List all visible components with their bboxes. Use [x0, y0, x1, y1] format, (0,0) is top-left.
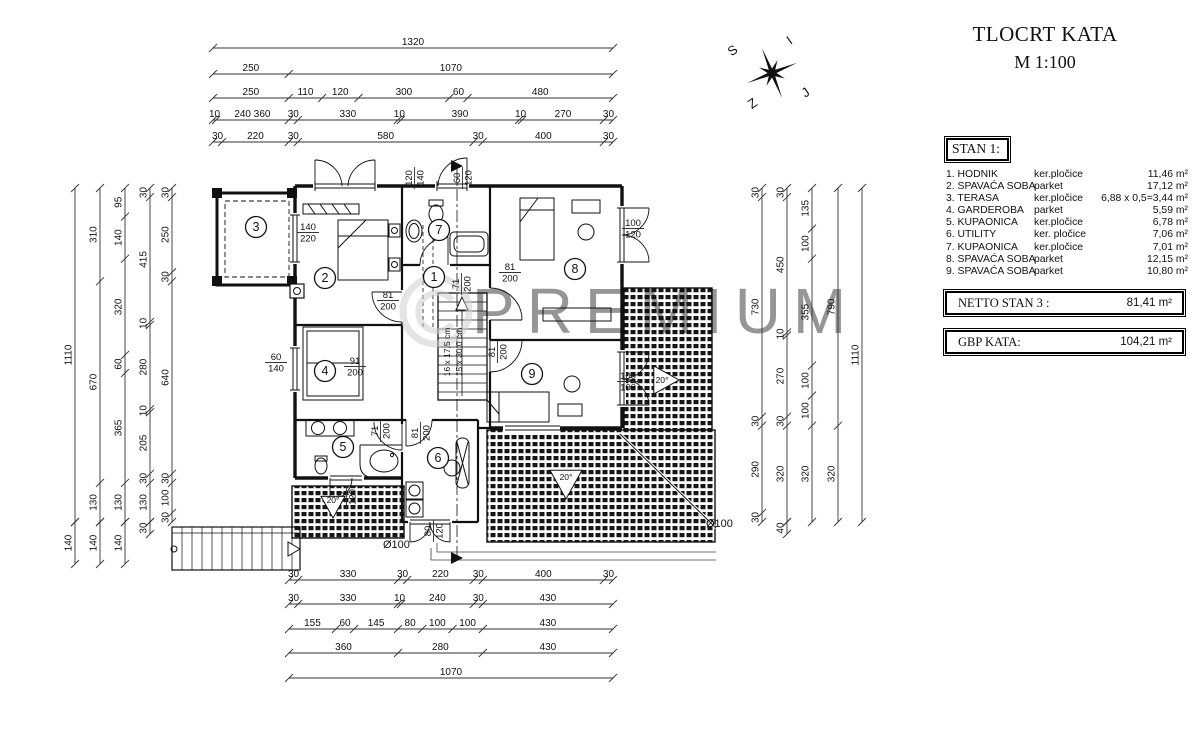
dim-label: 480	[532, 87, 549, 98]
dim-label: 95	[114, 196, 125, 208]
room-area: 6,78 m²	[1096, 217, 1188, 229]
dim-label: 250	[243, 63, 260, 74]
dim-label: 415	[139, 251, 150, 268]
room-material: ker.pločice	[1034, 217, 1096, 229]
dim-label: 220	[247, 131, 264, 142]
gbp-label: GBP KATA:	[958, 335, 1021, 350]
dim-label: 30	[288, 569, 300, 580]
dim-label: 100	[801, 235, 812, 252]
room-number-1: 1	[424, 267, 445, 288]
dim-label: 30	[288, 131, 300, 142]
dim-label: 140	[89, 534, 100, 551]
room-area: 5,59 m²	[1096, 205, 1188, 217]
dim-label: 205	[139, 434, 150, 451]
dim-chain-horizontal: 1070	[285, 667, 617, 682]
opening-height: 140	[416, 170, 427, 186]
room-material: ker. pločice	[1034, 229, 1096, 241]
dim-label: 430	[540, 593, 557, 604]
compass-letter: J	[798, 84, 812, 100]
opening-width: 81	[410, 428, 421, 439]
diameter-label: Ø100	[706, 518, 733, 530]
dim-label: 100	[429, 618, 446, 629]
legend-row: 7. KUPAONICAker.pločice7,01 m²	[946, 242, 1188, 254]
opening-size-label: 81200	[410, 422, 433, 444]
room-number-label: 4	[322, 364, 329, 378]
bed-room2	[338, 220, 400, 280]
opening-width: 81	[505, 262, 516, 273]
drawing-scale: M 1:100	[950, 52, 1140, 73]
room-area: 12,15 m²	[1096, 254, 1188, 266]
dim-chain-vertical: 1110	[64, 184, 80, 526]
opening-height: 200	[380, 302, 396, 313]
opening-size-label: 81200	[377, 290, 399, 313]
room-area: 17,12 m²	[1096, 181, 1188, 193]
room-material: ker.pločice	[1034, 193, 1096, 205]
dim-label: 60	[453, 87, 465, 98]
opening-width: 80	[423, 526, 434, 537]
floorplan-drawing: PREMIUM 13202501070250110120300604801024…	[0, 0, 1200, 749]
dim-label: 155	[304, 618, 321, 629]
opening-width: 91	[350, 356, 361, 367]
room-number-6: 6	[428, 448, 449, 469]
room-number-label: 1	[431, 270, 438, 284]
dim-label: 30	[139, 187, 150, 199]
room-area: 11,46 m²	[1096, 169, 1188, 181]
opening-width: 100	[620, 371, 636, 382]
dim-label: 1320	[402, 37, 425, 48]
room-material: parket	[1034, 254, 1096, 266]
dim-chain-horizontal: 1556014580100100430	[285, 618, 617, 633]
compass-rose: SIZJ	[725, 33, 813, 112]
dim-label: 140	[114, 534, 125, 551]
dim-chain-vertical: 30	[139, 518, 155, 538]
dim-label: 790	[827, 298, 838, 315]
slope-label: 20°	[327, 495, 340, 505]
legend-row: 5. KUPAONICAker.pločice6,78 m²	[946, 217, 1188, 229]
legend-row: 1. HODNIKker.pločice11,46 m²	[946, 169, 1188, 181]
room-number-label: 2	[322, 271, 329, 285]
dim-label: 330	[340, 593, 357, 604]
opening-width: 71	[451, 279, 462, 290]
dim-chain-vertical: 135100355100100320	[801, 184, 817, 526]
dim-chain-vertical: 140	[114, 518, 130, 568]
compass-letter: S	[725, 41, 741, 58]
dim-label: 30	[139, 472, 150, 484]
dim-label: 250	[243, 87, 260, 98]
dim-chain-vertical: 307303029030	[751, 184, 767, 526]
netto-label: NETTO STAN 3 :	[958, 296, 1049, 311]
compass-letter: Z	[745, 95, 760, 112]
dim-label: 320	[827, 465, 838, 482]
room-area: 7,06 m²	[1096, 229, 1188, 241]
diameter-label: Ø100	[383, 539, 410, 551]
dim-label: 640	[161, 369, 172, 386]
dim-label: 100	[161, 489, 172, 506]
opening-size-label: 60140	[265, 352, 287, 375]
lower-floor-outline	[431, 543, 716, 560]
dim-label: 220	[432, 569, 449, 580]
dim-chain-vertical: 40	[776, 518, 792, 538]
opening-height: 120	[625, 230, 641, 241]
dim-label: 30	[397, 569, 409, 580]
dim-chain-vertical: 1110	[851, 184, 867, 526]
room-material: parket	[1034, 205, 1096, 217]
room-material: parket	[1034, 266, 1096, 278]
dim-label: 250	[161, 226, 172, 243]
dim-label: 280	[139, 358, 150, 375]
room-name: 8. SPAVAĆA SOBA	[946, 254, 1034, 266]
dim-label: 60	[114, 358, 125, 370]
legend-row: 2. SPAVAĆA SOBAparket17,12 m²	[946, 181, 1188, 193]
dim-label: 1070	[440, 667, 463, 678]
dim-label: 300	[396, 87, 413, 98]
dim-label: 30	[473, 569, 485, 580]
opening-width: 100	[625, 218, 641, 229]
opening-height: 120	[435, 523, 446, 539]
dim-label: 10	[394, 593, 406, 604]
dim-chain-horizontal: 10240 36030330103901027030	[209, 109, 617, 124]
netto-total-box: NETTO STAN 3 : 81,41 m²	[945, 291, 1184, 315]
room-name: 6. UTILITY	[946, 229, 1034, 241]
dim-label: 580	[377, 131, 394, 142]
dim-label: 390	[452, 109, 469, 120]
legend-row: 8. SPAVAĆA SOBAparket12,15 m²	[946, 254, 1188, 266]
opening-height: 200	[499, 344, 510, 360]
legend-row: 3. TERASAker.pločice6,88 x 0,5=3,44 m²	[946, 193, 1188, 205]
opening-size-label: 100100	[617, 371, 639, 394]
legend-row: 9. SPAVAĆA SOBAparket10,80 m²	[946, 266, 1188, 278]
dim-label: 30	[603, 109, 615, 120]
opening-height: 120	[348, 489, 359, 505]
dim-label: 30	[776, 187, 787, 199]
dim-chain-vertical: 790320	[827, 184, 843, 526]
dim-label: 355	[801, 303, 812, 320]
dim-label: 10	[209, 109, 221, 120]
opening-size-label: 71200	[370, 420, 393, 442]
dim-label: 1110	[851, 344, 862, 365]
opening-height: 220	[300, 234, 316, 245]
exterior-stairs	[171, 527, 300, 570]
dim-chain-horizontal: 30220305803040030	[209, 131, 617, 146]
opening-height: 200	[422, 425, 433, 441]
dim-chain-horizontal: 360280430	[285, 642, 617, 657]
room-legend-table: 1. HODNIKker.pločice11,46 m²2. SPAVAĆA S…	[946, 169, 1188, 278]
dim-label: 30	[161, 511, 172, 523]
dim-chain-horizontal: 30330302203040030	[285, 569, 617, 584]
dim-label: 430	[540, 618, 557, 629]
room-number-label: 3	[253, 220, 260, 234]
roof-annotation: Ø100	[383, 539, 410, 551]
dim-label: 320	[776, 465, 787, 482]
dim-label: 30	[161, 472, 172, 484]
dim-label: 30	[751, 187, 762, 199]
dim-chain-vertical: 30250306403010030	[161, 184, 177, 526]
room-area: 7,01 m²	[1096, 242, 1188, 254]
floorplan-page: { "title": {"line1": "TLOCRT KATA", "lin…	[0, 0, 1200, 749]
dim-label: 100	[801, 372, 812, 389]
room-number-3: 3	[246, 217, 267, 238]
room-name: 3. TERASA	[946, 193, 1034, 205]
gbp-value: 104,21 m²	[1120, 336, 1172, 348]
netto-value: 81,41 m²	[1127, 297, 1172, 309]
dim-chain-horizontal: 25011012030060480	[209, 87, 617, 102]
room-number-label: 5	[340, 440, 347, 454]
dim-label: 330	[340, 109, 357, 120]
opening-width: 120	[404, 170, 415, 186]
dim-label: 320	[114, 298, 125, 315]
dim-label: 1070	[440, 63, 463, 74]
dim-chain-vertical: 310670130	[89, 184, 105, 526]
dim-label: 130	[89, 494, 100, 511]
bathtub-room7	[450, 232, 488, 256]
dim-label: 270	[555, 109, 572, 120]
opening-width: 60	[452, 173, 463, 184]
room-number-label: 6	[435, 451, 442, 465]
dim-label: 320	[801, 465, 812, 482]
opening-height: 140	[268, 364, 284, 375]
dim-label: 330	[340, 569, 357, 580]
room-area: 10,80 m²	[1096, 266, 1188, 278]
room-name: 2. SPAVAĆA SOBA	[946, 181, 1034, 193]
room-material: parket	[1034, 181, 1096, 193]
slope-label: 20°	[560, 472, 573, 482]
room-number-9: 9	[522, 364, 543, 385]
dim-label: 30	[139, 522, 150, 534]
dim-chain-horizontal: 2501070	[209, 63, 617, 78]
gbp-total-box: GBP KATA: 104,21 m²	[945, 330, 1184, 354]
dim-label: 1110	[64, 344, 75, 365]
opening-width: 60	[271, 352, 282, 363]
opening-height: 100	[620, 383, 636, 394]
dim-label: 140	[114, 229, 125, 246]
room-number-5: 5	[333, 437, 354, 458]
dim-chain-vertical: 304501027030320	[776, 184, 792, 526]
legend-row: 4. GARDEROBAparket5,59 m²	[946, 205, 1188, 217]
room-name: 4. GARDEROBA	[946, 205, 1034, 217]
dim-label: 360	[335, 642, 352, 653]
dim-label: 290	[751, 461, 762, 478]
dim-label: 135	[801, 200, 812, 217]
room-name: 5. KUPAONICA	[946, 217, 1034, 229]
dim-label: 270	[776, 367, 787, 384]
dim-label: 30	[751, 415, 762, 427]
slope-label: 20°	[656, 375, 669, 385]
room-material: ker.pločice	[1034, 242, 1096, 254]
dim-chain-vertical: 30415102801020530130	[139, 184, 155, 526]
compass-star-icon	[747, 48, 797, 98]
dim-label: 30	[473, 593, 485, 604]
dim-label: 80	[405, 618, 417, 629]
chimney	[290, 284, 304, 298]
dim-label: 30	[776, 415, 787, 427]
legend-header: STAN 1:	[946, 138, 1009, 161]
room-number-8: 8	[565, 259, 586, 280]
dim-label: 130	[139, 494, 150, 511]
dim-label: 10	[394, 109, 406, 120]
opening-size-label: 81200	[499, 262, 521, 285]
dim-label: 240	[429, 593, 446, 604]
dim-label: 30	[603, 131, 615, 142]
stairs-direction-arrow	[288, 542, 300, 556]
dim-label: 30	[161, 187, 172, 199]
dim-label: 120	[332, 87, 349, 98]
dim-label: 130	[114, 494, 125, 511]
dim-label: 110	[297, 87, 313, 98]
room-name: 7. KUPAONICA	[946, 242, 1034, 254]
dim-label: 10	[515, 109, 527, 120]
opening-height: 120	[464, 170, 475, 186]
room-number-label: 8	[572, 262, 579, 276]
dim-chain-vertical: 140	[89, 518, 105, 568]
dim-label: 30	[473, 131, 485, 142]
opening-width: 81	[487, 347, 498, 358]
dim-label: 40	[776, 522, 787, 534]
dim-chain-horizontal: 303301024030430	[285, 593, 617, 608]
opening-width: 81	[383, 290, 394, 301]
stairs-label: 15 x 30,0 cm	[454, 328, 464, 377]
roof-hatch-south	[487, 430, 715, 542]
room-number-4: 4	[315, 361, 336, 382]
opening-size-label: 140220	[297, 222, 319, 245]
dim-label: 145	[368, 618, 385, 629]
dim-label: 730	[751, 298, 762, 315]
dim-label: 400	[535, 569, 552, 580]
compass-letter: I	[784, 33, 796, 47]
dim-label: 60	[339, 618, 351, 629]
dim-label: 30	[161, 271, 172, 283]
dim-chain-vertical: 140	[64, 518, 80, 568]
drawing-title: TLOCRT KATA	[950, 22, 1140, 47]
opening-height: 200	[463, 276, 474, 292]
opening-height: 200	[347, 368, 363, 379]
dim-label: 30	[288, 109, 300, 120]
room-name: 9. SPAVAĆA SOBA	[946, 266, 1034, 278]
stairs-label: 16 x 17,5 cm	[442, 328, 452, 377]
room-number-label: 7	[436, 223, 443, 237]
dim-label: 30	[603, 569, 615, 580]
dim-label: 430	[540, 642, 557, 653]
dim-label: 100	[801, 402, 812, 419]
room-name: 1. HODNIK	[946, 169, 1034, 181]
drawing-title-block: TLOCRT KATA M 1:100	[950, 22, 1140, 73]
opening-size-label: 120140	[404, 167, 427, 189]
room-material: ker.pločice	[1034, 169, 1096, 181]
dim-label: 400	[535, 131, 552, 142]
dim-label: 30	[288, 593, 300, 604]
dim-label: 100	[459, 618, 476, 629]
room-number-2: 2	[315, 268, 336, 289]
shelf-room2	[303, 204, 359, 214]
opening-size-label: 100120	[622, 218, 644, 241]
dim-label: 30	[212, 131, 224, 142]
room-number-label: 9	[529, 367, 536, 381]
legend-row: 6. UTILITYker. pločice7,06 m²	[946, 229, 1188, 241]
opening-size-label: 71200	[451, 273, 474, 295]
dim-label: 670	[89, 373, 100, 390]
room-area: 6,88 x 0,5=3,44 m²	[1096, 193, 1188, 205]
dim-label: 240 360	[234, 109, 271, 120]
dim-label: 280	[432, 642, 449, 653]
room-number-7: 7	[429, 220, 450, 241]
roof-annotation: Ø100	[706, 518, 733, 530]
opening-width: 71	[370, 426, 381, 437]
dim-chain-vertical: 9514032060365130	[114, 184, 130, 526]
dim-label: 30	[751, 511, 762, 523]
opening-height: 200	[382, 423, 393, 439]
opening-height: 200	[502, 274, 518, 285]
dim-label: 140	[64, 534, 75, 551]
dim-label: 365	[114, 419, 125, 436]
opening-width: 140	[300, 222, 316, 233]
dim-chain-horizontal: 1320	[209, 37, 617, 52]
dim-label: 450	[776, 256, 787, 273]
dim-label: 310	[89, 226, 100, 243]
